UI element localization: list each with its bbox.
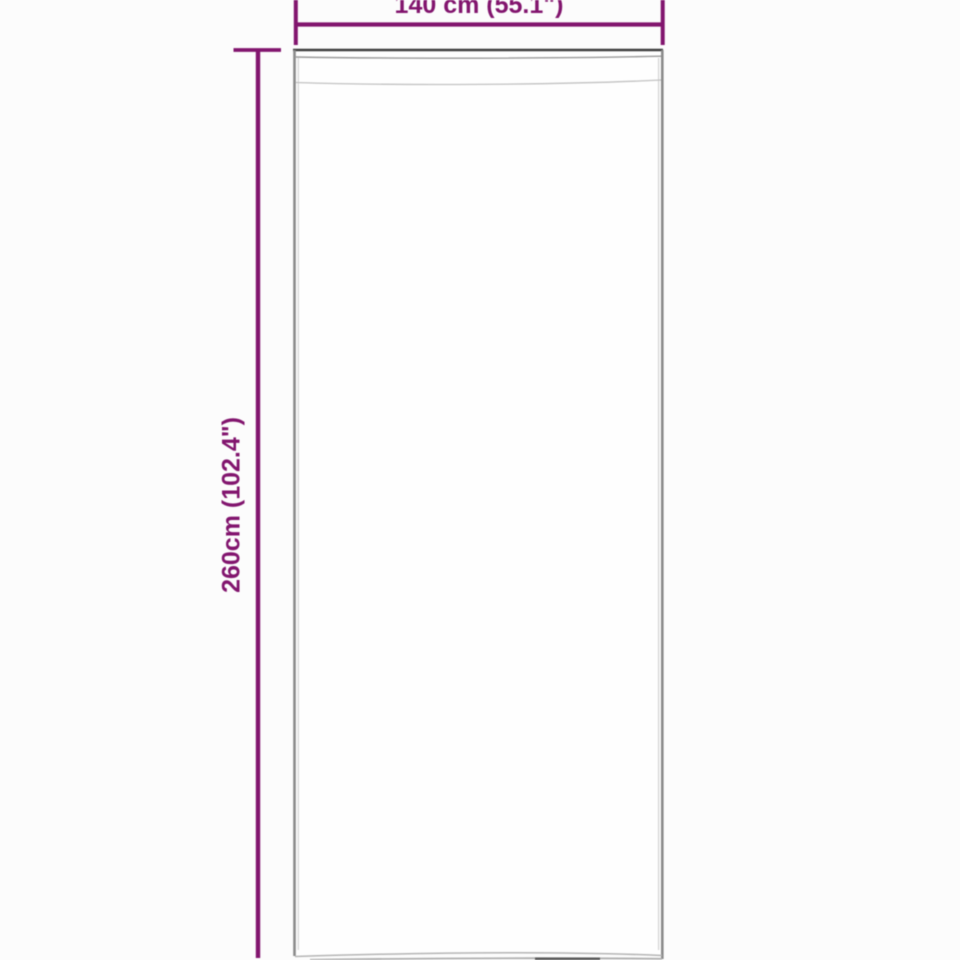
svg-text:260cm (102.4"): 260cm (102.4") bbox=[218, 417, 246, 593]
svg-text:140 cm (55.1"): 140 cm (55.1") bbox=[395, 0, 564, 19]
